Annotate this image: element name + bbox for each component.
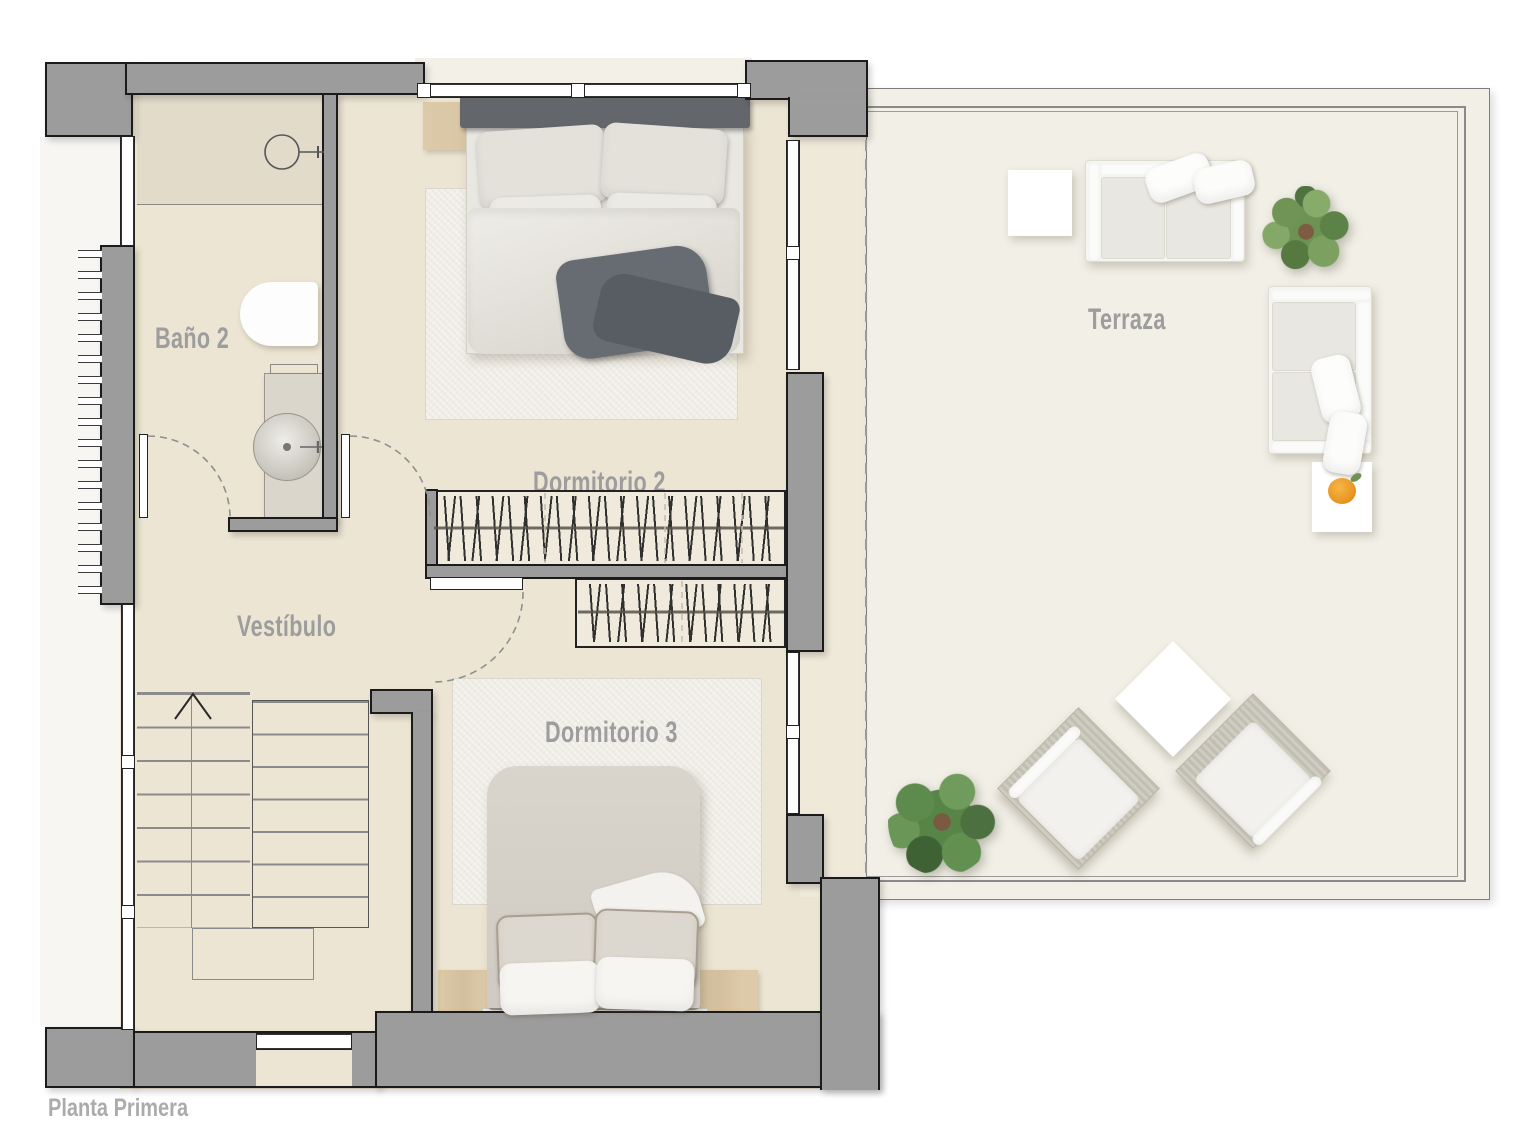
label-vestibulo: Vestíbulo xyxy=(237,610,336,644)
wall-vestibule-dorm3 xyxy=(411,712,433,1014)
dorm3-pillow xyxy=(595,956,695,1011)
dorm3-pillow xyxy=(499,960,601,1015)
door-dormitorio3 xyxy=(430,577,523,590)
shower-area xyxy=(137,95,322,205)
stairs-landing xyxy=(192,928,314,980)
window-right-dorm2 xyxy=(786,140,800,370)
louver-fins xyxy=(78,250,102,602)
dorm2-wardrobe xyxy=(430,490,786,567)
dorm3-wardrobe xyxy=(575,578,786,648)
exterior-strip-top xyxy=(415,58,752,84)
vanity-back xyxy=(270,364,318,374)
potted-plant-pothos xyxy=(1262,186,1350,274)
label-terraza: Terraza xyxy=(1088,303,1166,337)
staircase xyxy=(137,692,370,982)
plan-title: Planta Primera xyxy=(48,1094,188,1123)
wall-corner-bottom-left xyxy=(45,1027,135,1088)
window-mullion xyxy=(786,246,800,260)
wall-bottom-right xyxy=(375,1011,880,1088)
hanger-symbols xyxy=(440,496,776,561)
wall-bathroom-right xyxy=(322,93,338,521)
floor-plan-canvas: Baño 2 Dormitorio 2 Dormitorio 3 Vestíbu… xyxy=(0,0,1515,1130)
dorm2-bed-headboard xyxy=(460,96,750,128)
window-mullion xyxy=(417,83,431,98)
sofa-armrest xyxy=(1088,163,1100,261)
stairs-flight-left xyxy=(137,692,250,928)
wall-pier-right-middle xyxy=(786,372,824,652)
terrace-side-table xyxy=(1008,170,1072,236)
wall-bathroom-bottom xyxy=(228,517,338,532)
window-right-dorm3 xyxy=(786,652,800,814)
window-mullion xyxy=(121,755,135,769)
sink-drain xyxy=(283,443,291,451)
wall-wardrobe-left-cap xyxy=(425,489,438,569)
window-top-dorm2 xyxy=(418,83,748,98)
toilet xyxy=(240,282,318,346)
stairs-flight-right xyxy=(252,700,369,928)
stairs-divider xyxy=(191,692,192,928)
window-left-stairwell xyxy=(121,604,135,1030)
window-mullion xyxy=(786,725,800,739)
wall-corner-top-left xyxy=(45,62,133,137)
wall-pier-top-right xyxy=(745,60,868,100)
door-bathroom xyxy=(139,434,148,518)
wall-pier-top-right-lower xyxy=(788,97,868,137)
window-mullion xyxy=(571,83,585,98)
wall-pier-right-lower xyxy=(786,814,824,884)
hanger-symbols xyxy=(585,584,776,642)
sofa-armrest xyxy=(1271,289,1371,301)
label-bano2: Baño 2 xyxy=(155,322,229,356)
wall-corner-bottom-right xyxy=(820,877,880,1090)
wall-top-bathroom xyxy=(125,62,425,95)
wall-louver-pier-left xyxy=(100,245,135,605)
door-dormitorio2 xyxy=(341,434,350,518)
window-left-bathroom xyxy=(120,136,135,246)
potted-plant-monstera xyxy=(888,768,996,876)
label-dormitorio3: Dormitorio 3 xyxy=(545,716,678,750)
wall-dorm3-door-jamb xyxy=(370,689,433,714)
window-bottom xyxy=(256,1033,352,1050)
window-mullion xyxy=(121,905,135,919)
window-mullion xyxy=(737,83,751,98)
